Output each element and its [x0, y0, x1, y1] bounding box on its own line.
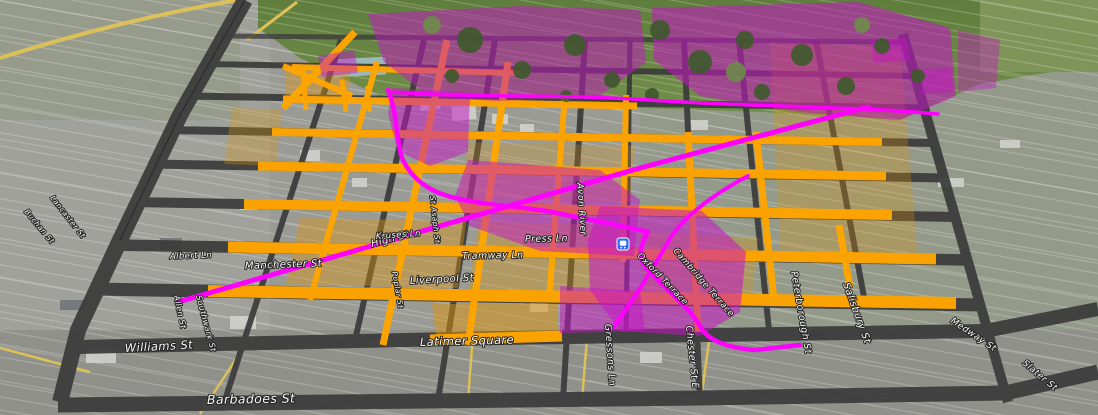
orange-stub-1: [303, 70, 306, 110]
orange-block: [224, 108, 282, 166]
zone-park-edge: [958, 30, 1000, 92]
transit-station-icon[interactable]: [617, 238, 629, 250]
tree: [445, 69, 459, 83]
bus-wheel-glyph: [624, 247, 626, 249]
grass-patch: [726, 62, 746, 82]
street-label-albert-ln: Albert Ln: [169, 251, 212, 262]
tree: [564, 34, 586, 56]
street-label-tramway-ln: Tramway Ln: [462, 250, 524, 262]
tree: [457, 27, 483, 53]
tree: [650, 20, 670, 40]
street-label-press-ln: Press Ln: [525, 233, 568, 245]
tree: [754, 84, 770, 100]
zone-suburb-2: [920, 68, 954, 94]
street-label-barbadoes-st: Barbadoes St: [207, 390, 296, 407]
street-label-latimer-square: Latimer Square: [420, 333, 515, 349]
tree: [688, 50, 712, 74]
tree: [604, 72, 620, 88]
bus-wheel-glyph: [620, 247, 622, 249]
grass-patch: [854, 17, 870, 33]
tree: [911, 69, 925, 83]
building: [352, 178, 367, 187]
grass-patch: [423, 16, 441, 34]
building: [690, 120, 708, 130]
tree: [874, 38, 890, 54]
tree: [736, 31, 754, 49]
building: [1000, 140, 1020, 148]
building: [640, 352, 662, 363]
tree: [837, 77, 855, 95]
map-canvas[interactable]: Barbadoes St Williams St Latimer Square …: [0, 0, 1098, 415]
tree: [791, 44, 813, 66]
map-viewport[interactable]: Barbadoes St Williams St Latimer Square …: [0, 0, 1098, 415]
building: [520, 124, 534, 133]
tree: [513, 61, 531, 79]
bus-body-glyph: [620, 241, 626, 246]
